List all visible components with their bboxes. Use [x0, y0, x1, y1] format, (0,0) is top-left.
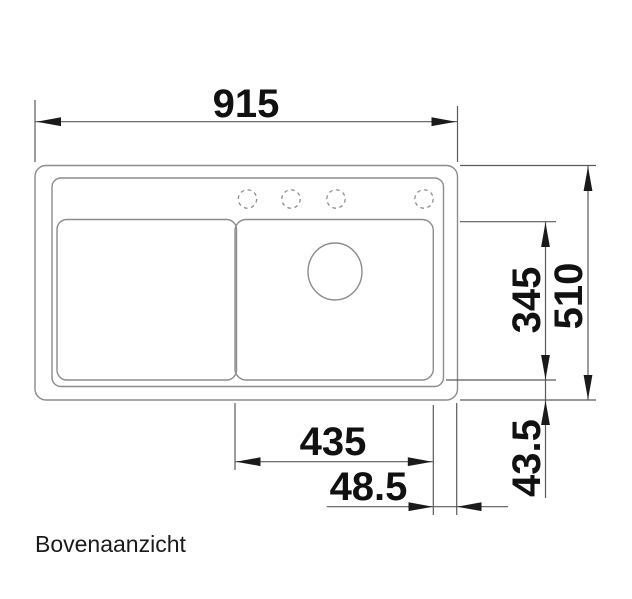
arrowhead-down: [584, 375, 593, 400]
dimension-label-bowl-depth: 345: [505, 267, 549, 334]
dimension-label-overall-depth: 510: [547, 263, 591, 330]
sink-inner-rim: [52, 178, 444, 387]
sink-top-view-drawing: 915 510 345 43.5: [0, 0, 632, 599]
sink-outer-edge: [35, 166, 458, 401]
drain-hole: [308, 243, 362, 300]
arrowhead-right: [408, 457, 433, 466]
left-bowl: [57, 220, 237, 381]
dimension-label-bowl-width: 435: [300, 420, 367, 464]
drawing-caption: Bovenaanzicht: [35, 531, 186, 557]
dimension-rear-ledge-offset: 43.5: [505, 401, 550, 497]
arrowhead-right-inward: [409, 502, 434, 511]
arrowhead-right: [432, 117, 457, 126]
tap-hole-3: [327, 190, 345, 208]
dimension-label-right-ledge-offset: 48.5: [330, 465, 408, 509]
arrowhead-left-inward: [457, 502, 482, 511]
dimension-overall-width: 915: [35, 82, 458, 162]
arrowhead-left: [37, 117, 62, 126]
dimension-label-rear-ledge-offset: 43.5: [505, 419, 549, 497]
technical-drawing-page: 915 510 345 43.5: [0, 0, 632, 599]
tap-hole-1: [238, 190, 256, 208]
arrowhead-down: [541, 355, 550, 380]
arrowhead-up: [584, 167, 593, 192]
arrowhead-left: [236, 457, 261, 466]
dimension-label-overall-width: 915: [213, 82, 280, 126]
tap-hole-2: [282, 190, 300, 208]
sink-body: [35, 166, 458, 401]
tap-hole-4: [415, 190, 433, 208]
arrowhead-up: [541, 223, 550, 248]
